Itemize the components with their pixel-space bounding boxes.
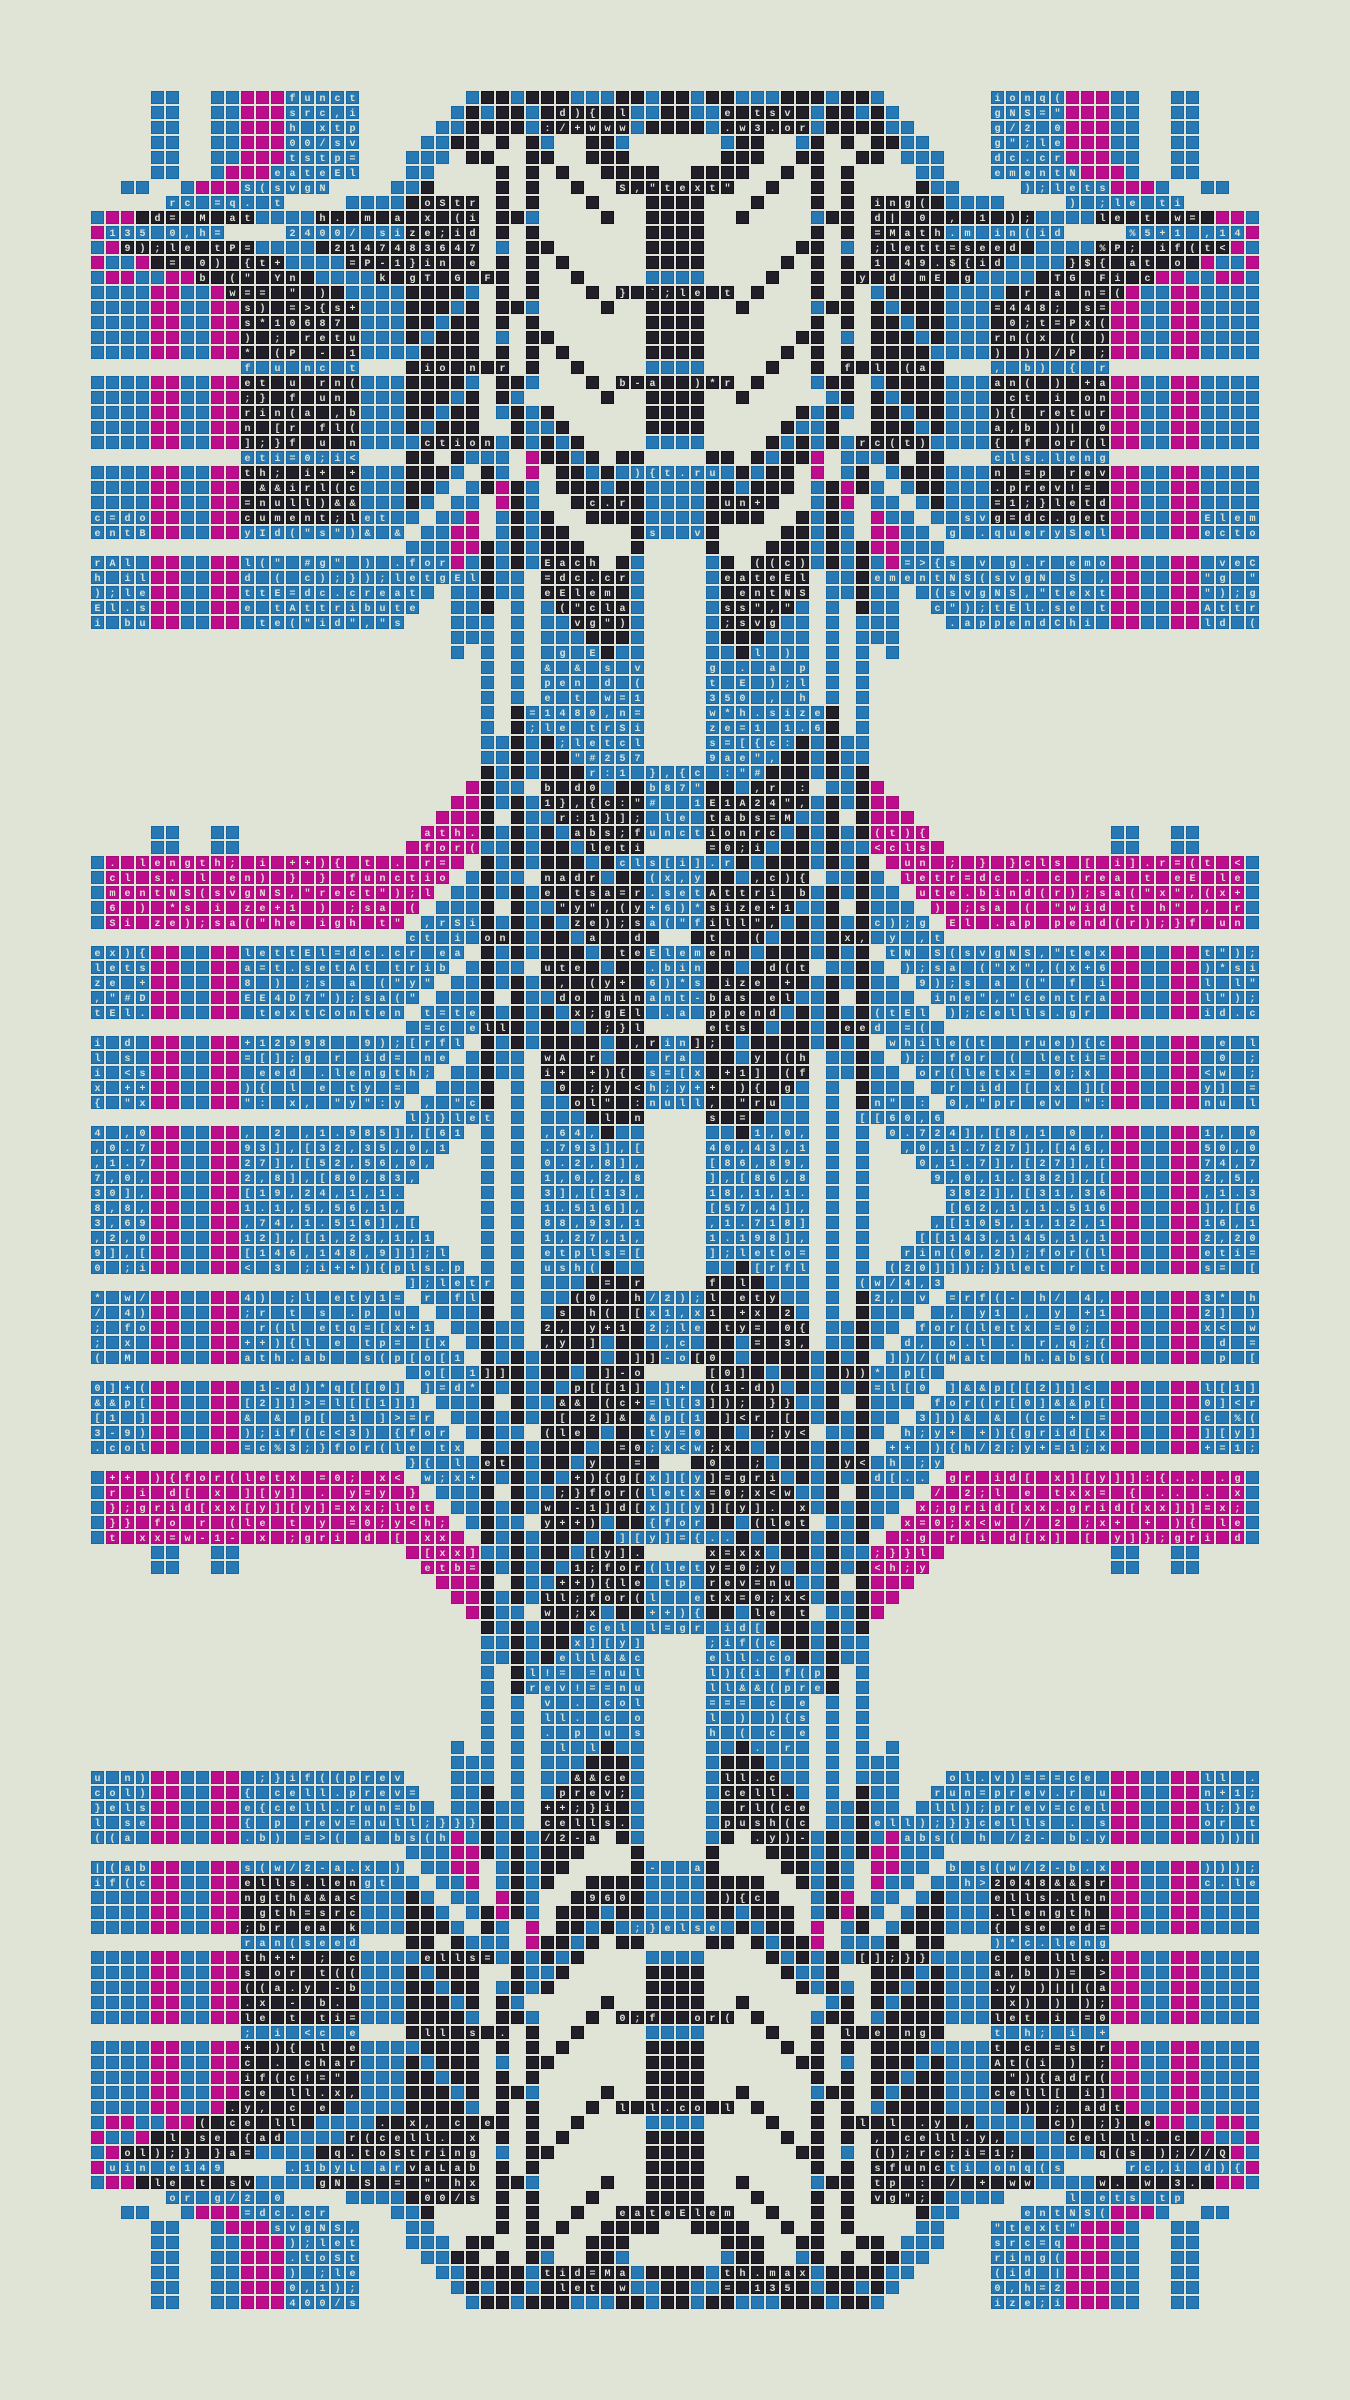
svg-text:){t.ru: ){t.ru — [635, 468, 725, 480]
svg-text:[1 ] & & p[ 1 ]>=r: [1 ] & & p[ 1 ]>=r — [95, 1413, 440, 1425]
svg-text:7,0, 2,8],[80,83,: 7,0, 2,8],[80,83, — [95, 1173, 425, 1185]
svg-text:. length; i ++){ t . r=: . length; i ++){ t . r= — [110, 858, 455, 870]
svg-text:while(t rue){c e l: while(t rue){c e l — [890, 1038, 1265, 1050]
svg-text:th++ ; c ells=: th++ ; c ells= — [245, 1953, 500, 1965]
svg-text:0;t=Px(: 0;t=Px( — [1010, 318, 1115, 330]
svg-text:400/s: 400/s — [290, 2298, 365, 2310]
svg-text:f u nc t: f u nc t — [245, 363, 365, 375]
svg-text:,0.7 93],[32,35,0,1: ,0.7 93],[32,35,0,1 — [95, 1143, 455, 1155]
svg-text:ush(: ush( — [545, 1263, 605, 1275]
svg-text:0 ;i < 3 ;i++){pls.p: 0 ;i < 3 ;i++){pls.p — [95, 1263, 470, 1275]
svg-text:ol" :null, "ru: ol" :null, "ru — [575, 1098, 785, 1110]
svg-text:tN S(svgNS,"tex t");: tN S(svgNS,"tex t"); — [890, 948, 1265, 960]
svg-text:r fl: r fl — [425, 1293, 485, 1305]
svg-text:=1480,n=: =1480,n= — [530, 709, 650, 720]
svg-text:]=d* p[[1] ]+ (1-d): ]=d* p[[1] ]+ (1-d) =l[0 — [425, 1383, 935, 1395]
svg-text:sfuncti onq(s: sfuncti onq(s — [875, 2163, 1070, 2175]
svg-text:=Math.m in(id: =Math.m in(id — [875, 228, 1070, 240]
svg-text:th; i+ +: th; i+ + — [245, 468, 365, 480]
svg-text:ll.c: ll.c — [725, 1773, 785, 1785]
svg-text:gth=src: gth=src — [260, 1908, 365, 1920]
svg-text:i <s eed .length;: i <s eed .length; — [95, 1068, 440, 1080]
svg-text:if(c!=": if(c!=" — [245, 2073, 350, 2085]
svg-text:=0;x<w;x: =0;x<w;x — [620, 1444, 740, 1455]
svg-text:=dc.cr: =dc.cr — [545, 573, 635, 585]
svg-text:entNS(: entNS( — [1025, 2208, 1115, 2220]
svg-text:d, o.l . r,q;{ d =: d, o.l . r,q;{ d = — [905, 1338, 1265, 1350]
svg-text:c.r un+: c.r un+ — [590, 499, 770, 510]
svg-text:eateElem: eateElem — [620, 2208, 740, 2220]
svg-text:;svg: ;svg — [725, 619, 785, 630]
svg-text:n" :: n" : — [875, 1098, 935, 1110]
svg-text:rin(0,2);for(l eti=: rin(0,2);for(l eti= — [905, 1248, 1265, 1260]
svg-text:x;grid[xx.grid[xx]]=x;: x;grid[xx.grid[xx]]=x; — [920, 1503, 1250, 1515]
svg-text:.toSt: .toSt — [290, 2254, 365, 2265]
svg-text:etb= 1;for(lety=0;y: etb= 1;for(lety=0;y <h;y — [425, 1563, 935, 1575]
svg-text:1.516],: 1.516], — [545, 1203, 650, 1215]
svg-text:w -1]d[x][y][y]. x: w -1]d[x][y][y]. x — [545, 1503, 815, 1515]
svg-text:for(letx =0; x< w: for(letx =0; x< w — [920, 1323, 1265, 1335]
svg-text:l e ng: l e ng — [845, 2028, 935, 2040]
svg-text:ementNS(svgN S , "g ": ementNS(svgN S , "g " — [875, 573, 1265, 585]
svg-text:h;y+ +){grid[x ][y]: h;y+ +){grid[x ][y] — [905, 1428, 1265, 1440]
svg-text:y++) {for (let: y++) {for (let — [545, 1518, 815, 1530]
svg-text:3,69 ,74,1.516],[: 3,69 ,74,1.516],[ — [95, 1218, 425, 1230]
svg-text:d){ l e tsv: d){ l e tsv — [560, 108, 800, 120]
svg-text:{ "x ": x, "y":y: { "x ": x, "y":y — [95, 1098, 410, 1110]
svg-text:ionq(: ionq( — [995, 93, 1070, 105]
svg-text:;letcl: ;letcl — [560, 738, 650, 750]
svg-text:.1byL arvaLab: .1byL arvaLab — [290, 2163, 485, 2175]
svg-text:0.2,8],: 0.2,8], — [545, 1158, 650, 1170]
svg-text:( ce ll . x, c e: ( ce ll . x, c e — [200, 2118, 500, 2130]
svg-text:];letr: ];letr — [410, 1278, 500, 1290]
svg-text:/ 2;l e txx= { .. . x: / 2;l e txx= { .. . x — [935, 1488, 1250, 1500]
svg-text:.length: .length — [995, 1908, 1100, 1920]
svg-text:1,0,: 1,0, — [755, 1129, 815, 1140]
svg-text:ring(: ring( — [995, 2253, 1070, 2265]
svg-text:g E: g E — [560, 649, 605, 660]
svg-text:vg"): vg") — [575, 618, 635, 630]
svg-text:((a.y -b: ((a.y -b — [245, 1983, 365, 1995]
svg-text:((c) =>{s v g.r emo: ((c) =>{s v g.r emo veC — [755, 558, 1265, 570]
svg-text:8,8, 1.1,5,56,1,: 8,8, 1.1,5,56,1, — [95, 1204, 410, 1215]
svg-text:/ 4) ;r t s .p u: / 4) ;r t s .p u — [95, 1308, 410, 1320]
svg-text:eti=0;i<: eti=0;i< — [245, 453, 365, 465]
svg-text:ets eed =(: ets eed =( — [710, 1023, 935, 1035]
svg-text:b s(w/2-b.x )));: b s(w/2-b.x ))); — [950, 1863, 1265, 1875]
svg-text:4 ,0 , 2 ,1.985],[61: 4 ,0 , 2 ,1.985],[61 — [95, 1128, 470, 1140]
svg-text:l se { p rev=null;}}}: l se { p rev=null;}}} — [95, 1818, 485, 1830]
svg-text:h>2048&&sr c.le: h>2048&&sr c.le — [965, 1878, 1265, 1890]
svg-text:or g/2 0: or g/2 0 — [170, 2193, 290, 2205]
svg-text:rc(t) { f or(l: rc(t) { f or(l — [860, 438, 1115, 450]
svg-text:18,1,1.: 18,1,1. — [710, 1189, 815, 1200]
svg-text:ing(: ing( — [875, 198, 935, 210]
svg-text:= 0) {t+ =P-1}in e: = 0) {t+ =P-1}in e — [170, 258, 485, 270]
svg-text:b-a )*r: b-a )*r — [620, 378, 740, 390]
svg-text:88,93,1: 88,93,1 — [545, 1219, 650, 1230]
svg-text:S(svgN: S(svgN — [245, 183, 335, 195]
svg-text:}els e{cell.run=b: }els e{cell.run=b — [95, 1803, 425, 1815]
svg-text:ll s .: ll s . — [425, 2028, 515, 2040]
svg-text:9,0,1.382],[ 2,5,: 9,0,1.382],[ 2,5, — [935, 1173, 1265, 1185]
svg-text:c . char: c . char — [245, 2058, 365, 2070]
svg-text:push(c: push(c — [725, 1818, 815, 1830]
svg-text:r:1 },{c :"#: r:1 },{c :"# — [590, 768, 770, 780]
svg-text:=0;i <cls: =0;i <cls — [710, 843, 935, 855]
svg-text:l}}let: l}}let — [410, 1113, 500, 1125]
svg-text:1},{c:"# 1E1A24",: 1},{c:"# 1E1A24", — [545, 798, 815, 810]
svg-text:for(r[0]&&p[ 0]<r: for(r[0]&&p[ 0]<r — [935, 1398, 1265, 1410]
svg-text:6 ) *s i ze+1 ) ;sa (: 6 ) *s i ze+1 ) ;sa ( — [110, 903, 425, 915]
svg-text:3-9) );if(c<3) {for: 3-9) );if(c<3) {for — [95, 1428, 455, 1440]
svg-text:b d0 b87" ,r :: b d0 b87" ,r : — [545, 783, 815, 795]
svg-text:30], [19,24,1,1.: 30], [19,24,1,1. — [95, 1188, 410, 1200]
svg-text:.y )||(a: .y )||(a — [995, 1983, 1115, 1995]
svg-text:g";le: g";le — [995, 138, 1070, 150]
svg-text:,[105,1,12,1 16,1: ,[105,1,12,1 16,1 — [935, 1218, 1265, 1230]
svg-text:x=0;x<w / 2 ;x+ + ){ le: x=0;x<w / 2 ;x+ + ){ le — [905, 1518, 1250, 1530]
svg-text:o[ 1]] ]-o: o[ 1]] ]-o — [425, 1368, 650, 1380]
svg-text:gr id[ x][y]]:{.. .g: gr id[ x][y]]:{.. .g — [950, 1473, 1250, 1485]
svg-text:cls[i].r: cls[i].r — [620, 858, 740, 870]
svg-text:("cla: ("cla — [560, 603, 635, 615]
svg-text:);let: );let — [290, 2238, 365, 2250]
svg-text:"y",(y+6)*size+1: "y",(y+6)*size+1 — [560, 903, 800, 915]
svg-text:io n r: io n r — [425, 363, 515, 375]
svg-text:[[60,6: [[60,6 — [860, 1113, 950, 1125]
svg-text:l!= =nul: l!= =nul — [530, 1668, 650, 1680]
svg-text:e t w=1: e t w=1 — [545, 694, 650, 705]
svg-text:w;x+ +){g[x][y]=gri: w;x+ +){g[x][y]=gri d[.. — [425, 1473, 935, 1485]
svg-text:,2,0 12],[1,23,1,1: ,2,0 12],[1,23,1,1 — [95, 1233, 440, 1245]
svg-text:ex){ lettEl=dc.cr ea: ex){ lettEl=dc.cr ea — [95, 948, 470, 960]
svg-text:ell);}}cells . s or t: ell);}}cells . s or t — [875, 1818, 1265, 1830]
svg-text:00/sv: 00/sv — [290, 138, 365, 150]
svg-text:;le trSi: ;le trSi — [530, 723, 650, 735]
svg-text:l se {ad r(cell. x: l se {ad r(cell. x — [170, 2133, 485, 2145]
svg-text:l l: l l — [560, 1743, 605, 1755]
svg-text:,y ] ,c = 3,: ,y ] ,c = 3, — [545, 1338, 815, 1350]
svg-text:++;}i: ++;}i — [545, 1803, 620, 1815]
svg-text:;} f un: ;} f un — [245, 393, 350, 405]
svg-text:+ ){ l e: + ){ l e — [245, 2043, 365, 2055]
svg-text:l l .y , c) ;} e: l l .y , c) ;} e — [860, 2118, 1160, 2130]
svg-text:a,b )= >: a,b )= > — [995, 1968, 1115, 1980]
svg-text:i d +12998 9);[rfl: i d +12998 9);[rfl — [95, 1038, 470, 1050]
svg-text:) ) /P ;: ) ) /P ; — [995, 348, 1115, 360]
svg-text:x=xx ;}}l: x=xx ;}}l — [710, 1548, 935, 1560]
svg-text:v . col: v . col — [545, 1698, 650, 1710]
svg-text:3],[13,: 3],[13, — [545, 1188, 650, 1200]
svg-text:ol);} }a= q.toString: ol);} }a= q.toString — [125, 2148, 485, 2160]
svg-text:2, y+1 2;le ty= 0{: 2, y+1 2;le ty= 0{ — [545, 1323, 815, 1335]
svg-text:f l (a: f l (a — [845, 363, 935, 375]
svg-text:cel l=gr id[: cel l=gr id[ — [590, 1623, 770, 1635]
svg-text:];leto=: ];leto= — [710, 1248, 815, 1260]
svg-text:])/(Mat h.abs( p [: ])/(Mat h.abs( p [ — [890, 1353, 1265, 1365]
svg-text:ell.co: ell.co — [710, 1653, 800, 1665]
svg-text:t xx=w-1- x ;gri d [ xx: t xx=w-1- x ;gri d [ xx — [110, 1533, 455, 1545]
svg-text:ell&&c: ell&&c — [560, 1653, 650, 1665]
svg-text:();rc;i=1; q(s );//Q: ();rc;i=1; q(s );//Q — [875, 2148, 1235, 2160]
svg-text:rc,i d){: rc,i d){ — [1130, 2163, 1250, 2175]
svg-text:ll&&(pre: ll&&(pre — [710, 1683, 830, 1695]
svg-text:l ): l ) — [755, 648, 800, 660]
svg-text:9],[ [146,148,9]];l: 9],[ [146,148,9]];l — [95, 1248, 455, 1260]
svg-text:;}else: ;}else — [635, 1923, 725, 1935]
svg-text:;br ea k: ;br ea k — [245, 1923, 365, 1935]
svg-text:, cell.y, cel l. c: , cell.y, cel l. c — [875, 2133, 1190, 2145]
svg-text:.prev!=: .prev!= — [995, 484, 1100, 495]
svg-text:l l.co l: l l.co l — [620, 2103, 740, 2115]
svg-text:r id [ x ][ y] =: r id [ x ][ y] = — [950, 1083, 1265, 1095]
svg-text:; x ++){l e tp= [x: ; x ++){l e tp= [x — [95, 1338, 455, 1350]
svg-text:|(ab s(w/2-a.x ): |(ab s(w/2-a.x ) — [95, 1863, 410, 1875]
svg-text:gNS=": gNS=" — [995, 108, 1070, 120]
svg-text:le t sv gN S = " hx: le t sv gN S = " hx — [155, 2178, 485, 2190]
svg-text:(svgNS,"text ");g: (svgNS,"text ");g — [935, 588, 1265, 600]
svg-text:);sa ("x",(x+6 )*si: );sa ("x",(x+6 )*si — [905, 963, 1265, 975]
svg-text:[62,1,1.516 ],[6: [62,1,1.516 ],[6 — [950, 1203, 1265, 1215]
svg-text:9ae",: 9ae", — [710, 753, 785, 765]
svg-text:entB yId("s")& &: entB yId("s")& & — [95, 528, 410, 540]
svg-text:f l: f l — [710, 1278, 755, 1290]
svg-text:l s =[];g r id= ne: l s =[];g r id= ne — [95, 1053, 455, 1065]
svg-text:svg=dc.get Elem: svg=dc.get Elem — [965, 513, 1265, 525]
svg-text:cells.: cells. — [545, 1818, 635, 1830]
svg-text:l ) ){s: l ) ){s — [710, 1713, 815, 1725]
svg-text:lets a=t.setAt trib: lets a=t.setAt trib — [95, 963, 455, 975]
svg-text:et u rn(: et u rn( — [245, 378, 365, 390]
svg-text:c=do cument;let: c=do cument;let — [95, 513, 395, 525]
svg-text:un ; } }cls [ i].r=(t <: un ; } }cls [ i].r=(t < — [905, 858, 1250, 870]
svg-text:n =p rev: n =p rev — [995, 469, 1115, 480]
svg-text:(20]]);}let r t s= [: (20]]);}let r t s= [ — [890, 1263, 1265, 1275]
svg-text:){ retur: ){ retur — [995, 408, 1115, 420]
svg-text:g .querySel ecto: g .querySel ecto — [950, 528, 1265, 540]
svg-text:ll. c o: ll. c o — [545, 1713, 650, 1725]
svg-text:=null)&&: =null)&& — [245, 498, 365, 510]
svg-text:ute .bin d(t: ute .bin d(t — [545, 963, 815, 975]
svg-text:eateEl: eateEl — [725, 573, 815, 585]
svg-text:S,"text": S,"text" — [620, 183, 740, 195]
svg-text:0,h=2: 0,h=2 — [995, 2283, 1070, 2295]
svg-text:1.198],: 1.198], — [710, 1233, 815, 1245]
svg-text:or(letx= 0;x <w ;: or(letx= 0;x <w ; — [920, 1068, 1265, 1080]
svg-text:i+ +){ s=[x +1] (f: i+ +){ s=[x +1] (f — [545, 1068, 815, 1080]
svg-text:ementN: ementN — [995, 169, 1085, 180]
svg-text:++){le tp rev=nu: ++){le tp rev=nu — [560, 1578, 800, 1590]
svg-text:h xtp: h xtp — [290, 123, 365, 135]
svg-text:(id |: (id | — [995, 2268, 1070, 2280]
svg-text:(le ty=0 ;y<: (le ty=0 ;y< — [545, 1428, 815, 1440]
svg-text:s v: s v — [650, 529, 710, 540]
svg-text:d= M at h. m a x (i: d= M at h. m a x (i — [155, 213, 485, 225]
svg-text:dc.cr: dc.cr — [995, 153, 1070, 165]
svg-text:if(c ells.lengt: if(c ells.lengt — [95, 1878, 395, 1890]
svg-text:for( leti: for( leti — [425, 843, 650, 855]
svg-text:x][y]: x][y] — [575, 1638, 650, 1650]
svg-text:);cells.gr id.c: );cells.gr id.c — [950, 1008, 1265, 1020]
svg-text:ells.len: ells.len — [995, 1893, 1115, 1905]
svg-text:do minant-bas el: do minant-bas el — [560, 993, 800, 1005]
svg-text:ran(seed: ran(seed — [245, 1938, 365, 1950]
svg-text:t E );l: t E );l — [710, 678, 815, 690]
svg-text:src,i: src,i — [290, 108, 365, 120]
svg-text:etpls=[: etpls=[ — [545, 1248, 650, 1260]
svg-text:ute.bind(r);sa("x",(x+: ute.bind(r);sa("x",(x+ — [920, 888, 1250, 900]
svg-text:40,43,1: 40,43,1 — [710, 1144, 815, 1155]
svg-text:tEl. textConten: tEl. textConten — [95, 1008, 410, 1020]
svg-text:prev;: prev; — [560, 1789, 635, 1800]
svg-text:}} fo r (le t y =0;y<h;: }} fo r (le t y =0;y<h; — [110, 1518, 455, 1530]
svg-text:h ( c e: h ( c e — [710, 1728, 815, 1740]
svg-text:r a n=(: r a n=( — [1025, 288, 1130, 300]
svg-text:0 ; y< h ;y: 0 ; y< h ;y — [710, 1458, 950, 1470]
svg-text:135 0,h=: 135 0,h= — [110, 228, 230, 240]
svg-text:l){i f(p: l){i f(p — [710, 1668, 830, 1680]
svg-text:, b) { r: , b) { r — [995, 363, 1115, 375]
svg-text:) ;le: ) ;le — [290, 2268, 365, 2280]
svg-text:1 49.${id }${ at o: 1 49.${id }${ at o — [875, 258, 1190, 270]
svg-text:. p u s: . p u s — [545, 1729, 650, 1740]
svg-text:2400/ size;id: 2400/ size;id — [290, 228, 485, 240]
svg-text:"#257: "#257 — [575, 753, 650, 765]
svg-text:rev!==nu: rev!==nu — [530, 1684, 650, 1695]
svg-text:w ;x ++){ le t: w ;x ++){ le t — [545, 1608, 815, 1620]
svg-text:,64,: ,64, — [545, 1129, 605, 1140]
svg-text:=448; s=: =448; s= — [995, 304, 1115, 315]
svg-text:le t ti=: le t ti= — [245, 2013, 365, 2025]
svg-text:cl s. l en) } } functio: cl s. l en) } } functio — [110, 873, 455, 885]
svg-text:s) =>{s+: s) =>{s+ — [245, 303, 365, 315]
svg-text:vg";: vg"; — [875, 2193, 935, 2205]
svg-text:0 ;y <h;y++ ){ g: 0 ;y <h;y++ ){ g — [560, 1083, 800, 1095]
svg-text:cell.: cell. — [725, 1788, 800, 1800]
svg-text:.col =c%3;}for(le tx: .col =c%3;}for(le tx — [95, 1443, 470, 1455]
svg-text:& & s v: & & s v — [545, 664, 650, 675]
svg-text:oStr: oStr — [425, 199, 485, 210]
svg-text:mentNS(svgNS,"rect");l: mentNS(svgNS,"rect");l — [110, 888, 440, 900]
svg-text:"){adr(: "){adr( — [1010, 2073, 1115, 2085]
svg-text:};grid[xx[y][y]=xx;let: };grid[xx[y][y]=xx;let — [110, 1503, 440, 1515]
svg-text:rc =q. t: rc =q. t — [170, 199, 290, 210]
svg-text:w*h.size: w*h.size — [710, 708, 830, 720]
svg-text:; i <c e: ; i <c e — [245, 2028, 365, 2040]
svg-text:tp : / + ww w. w 3.: tp : / + ww w. w 3. — [875, 2178, 1205, 2190]
svg-text:tstp=: tstp= — [290, 154, 365, 165]
svg-text:=c ell ;}l: =c ell ;}l — [425, 1023, 650, 1035]
svg-text:0.724],[8,1 0 , 1, 0: 0.724],[8,1 0 , 1, 0 — [890, 1128, 1265, 1140]
svg-text:entNS: entNS — [740, 589, 815, 600]
svg-text:- a: - a — [650, 1864, 710, 1875]
svg-text:n [r fl(: n [r fl( — [245, 423, 365, 435]
svg-text:wA r ra y (h: wA r ra y (h — [545, 1053, 815, 1065]
svg-text:[rfl: [rfl — [755, 1263, 815, 1275]
svg-text:) ; retu: ) ; retu — [245, 333, 365, 345]
svg-text:s*10687: s*10687 — [245, 318, 350, 330]
svg-text:.x - b.: .x - b. — [245, 1998, 350, 2010]
svg-text:. r: . r — [755, 1744, 800, 1755]
svg-text:s =: s = — [710, 1114, 755, 1125]
svg-text:b (" Yn k gT G F: b (" Yn k gT G F — [200, 273, 500, 285]
svg-text:} `;le t: } `;le t — [620, 288, 740, 300]
svg-text:{ se ed=: { se ed= — [995, 1923, 1115, 1935]
svg-text:ct i on: ct i on — [1010, 393, 1115, 405]
svg-text:&&p[ [2]]>=l[[1]]: &&p[ [2]]>=l[[1]] — [95, 1398, 425, 1410]
svg-text:e tsa=r.setAttri b: e tsa=r.setAttri b — [545, 888, 815, 900]
svg-text:run=prev.r u n+1;: run=prev.r u n+1; — [935, 1789, 1265, 1800]
svg-text:]]-o[0: ]]-o[0 — [635, 1353, 725, 1365]
svg-text:( M ath.ab s(p[o[1: ( M ath.ab s(p[o[1 — [95, 1353, 470, 1365]
svg-text:, (y+ 6)*s ize +: , (y+ 6)*s ize + — [560, 978, 800, 990]
svg-text:ngth&&a<: ngth&&a< — [245, 1893, 365, 1905]
svg-text:.y)- abs( h /2- b.y: .y)- abs( h /2- b.y ))| — [755, 1833, 1265, 1845]
svg-text:rl(ce: rl(ce — [740, 1803, 815, 1815]
svg-text:rAl l(" #g" ) .for: rAl l(" #g" ) .for Each — [95, 558, 605, 570]
svg-text:;if(c: ;if(c — [710, 1638, 785, 1650]
svg-text:0,"pr ev ": nu l: 0,"pr ev ": nu l — [950, 1098, 1265, 1110]
svg-text:eElem: eElem — [545, 588, 620, 600]
svg-text:= r: = r — [605, 1279, 650, 1290]
svg-text:c");tEl.se t Attr: c");tEl.se t Attr — [935, 603, 1265, 615]
svg-text:,0,1.727],[46, 50,0: ,0,1.727],[46, 50,0 — [905, 1143, 1265, 1155]
svg-text:,rin];: ,rin]; — [635, 1038, 725, 1050]
svg-text:ll;for(l etx=0;x<: ll;for(l etx=0;x< — [545, 1593, 815, 1605]
svg-text:],[86,8: ],[86,8 — [710, 1173, 815, 1185]
svg-text:350 , h: 350 , h — [710, 693, 815, 705]
svg-text:ol.v)===ce ll .: ol.v)===ce ll . — [950, 1773, 1265, 1785]
svg-text:[xx] [y].: [xx] [y]. — [425, 1548, 650, 1560]
svg-text:* (P - 1: * (P - 1 — [245, 348, 365, 360]
svg-text:00/s: 00/s — [425, 2193, 485, 2205]
svg-text:[];}} c e lls.: [];}} c e lls. — [860, 1953, 1115, 1965]
svg-text:ze=1 1.6: ze=1 1.6 — [710, 724, 830, 735]
svg-text:; fo r(l etq=[x+1: ; fo r(l etq=[x+1 — [95, 1323, 440, 1335]
svg-text:(0, h/2);l ety: (0, h/2);l ety — [575, 1293, 785, 1305]
svg-text:.g r i d[x] [ y]};gri d: .g r i d[x] [ y]};gri d — [905, 1533, 1250, 1545]
svg-text:ze + 8 ) ;s a ("y": ze + 8 ) ;s a ("y" — [95, 978, 440, 990]
svg-text:letr=dc . c rea t eE le: letr=dc . c rea t eE le — [905, 873, 1250, 885]
svg-text:ss",": ss"," — [725, 603, 800, 615]
svg-text:.appendChi ld (: .appendChi ld ( — [950, 618, 1265, 630]
svg-text:x ++ ){ l e ty =: x ++ ){ l e ty = — [95, 1083, 410, 1095]
svg-text:El .ap pend(r);}f un: El .ap pend(r);}f un — [950, 918, 1250, 930]
svg-text:9);le tP= 2147483647: 9);le tP= 2147483647 — [125, 243, 485, 255]
svg-text:0]+( 1-d)*q[[0]: 0]+( 1-d)*q[[0] — [95, 1383, 410, 1395]
svg-text:++ ){for(letx =0; x<: ++ ){for(letx =0; x< — [110, 1473, 410, 1485]
svg-text:0;f or(: 0;f or( — [620, 2013, 740, 2025]
svg-text:ath. abs;functionrc: ath. abs;functionrc (t){ — [425, 828, 935, 840]
svg-text:]&&p[[2]]< l[1]: ]&&p[[2]]< l[1] — [950, 1383, 1265, 1395]
svg-text:ce ll.x,: ce ll.x, — [245, 2088, 365, 2100]
svg-text:tid=Ma th.max: tid=Ma th.max — [545, 2268, 815, 2280]
svg-text:y d mE g TG Fi c: y d mE g TG Fi c — [860, 273, 1160, 285]
svg-text:=dc.cr: =dc.cr — [245, 2208, 335, 2220]
svg-text:&& (c+=l[3]); }}: && (c+=l[3]); }} — [560, 1398, 800, 1410]
svg-text:); for ( leti= 0 ;: ); for ( leti= 0 ; — [905, 1053, 1265, 1065]
svg-text:,rSi ze);sa("fill",: ,rSi ze);sa("fill", c);g — [425, 918, 935, 930]
svg-text:[[143,145,1,1 2,20: [[143,145,1,1 2,20 — [920, 1233, 1265, 1245]
svg-text:,"#D EE4D7");sa(": ,"#D EE4D7");sa(" — [95, 993, 425, 1005]
svg-text:[57,4],: [57,4], — [710, 1203, 815, 1215]
svg-text:&&irl(c: &&irl(c — [260, 483, 365, 495]
svg-text:, "c: , "c — [425, 1098, 485, 1110]
svg-text:(w/4,3: (w/4,3 — [860, 1278, 950, 1290]
svg-text:.y, c e: .y, c e — [230, 2104, 335, 2115]
